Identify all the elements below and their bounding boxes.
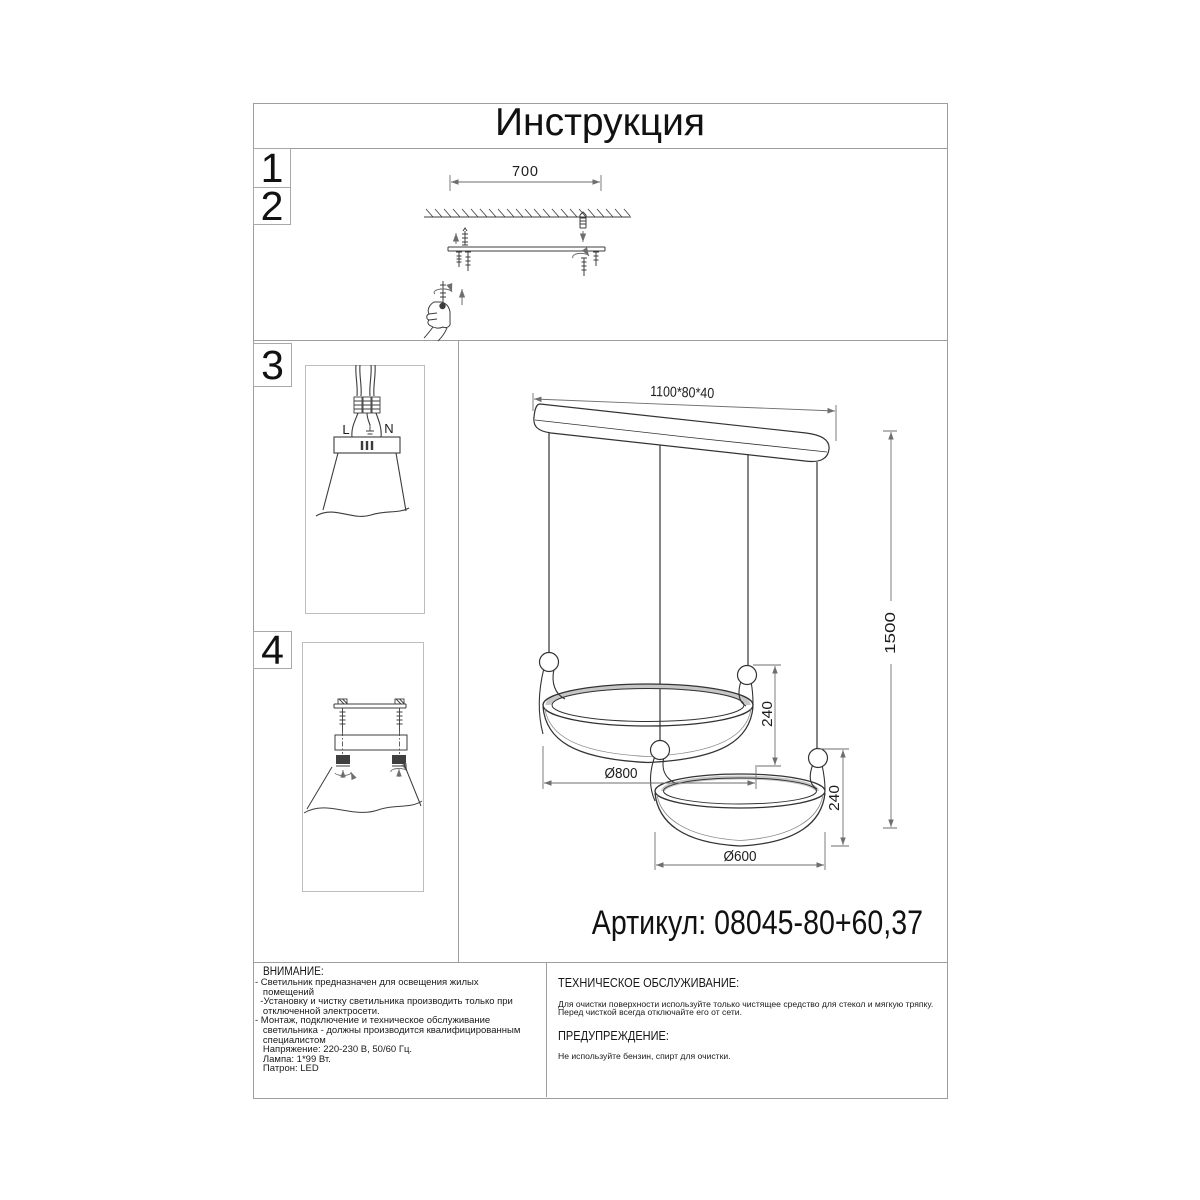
lampshade-wavy-edge [304, 801, 422, 813]
drop-dim-label: 1500 [883, 612, 899, 654]
bracket-bar [334, 704, 406, 708]
ring2-diameter-label: Ø600 [724, 849, 757, 865]
step-2-number: 2 [253, 187, 291, 225]
wiring-drawing: L N [305, 365, 423, 612]
article-number: Артикул: 08045-80+60,37 [592, 903, 894, 943]
supply-cables [356, 365, 375, 396]
maintenance-line: Перед чисткой всегда отключайте его от с… [558, 1008, 933, 1016]
cable-grippers [336, 755, 406, 766]
step-3-number: 3 [253, 343, 292, 387]
warning-text: Не используйте бензин, спирт для очистки… [558, 1052, 731, 1060]
hand-turning-connector [424, 281, 462, 341]
bracket-width-dim-label: 700 [512, 164, 538, 180]
attention-line: Патрон: LED [255, 1064, 541, 1074]
divider-notes [546, 962, 547, 1097]
wires-to-canopy [352, 413, 381, 437]
step-4-number: 4 [253, 631, 292, 669]
ceiling-hatch [426, 209, 630, 217]
label-neutral: N [384, 421, 393, 436]
ceiling-mounting-drawing: 700 [410, 150, 650, 342]
suspension-balls [540, 653, 828, 768]
divider-under-title [253, 148, 947, 149]
instruction-sheet: { "title": "Инструкция", "article": "Арт… [0, 0, 1200, 1200]
ring-600 [651, 756, 826, 846]
ceiling-bar [534, 404, 829, 462]
ground-symbol [366, 424, 374, 437]
left-screws-down [456, 252, 471, 271]
divider-above-notes [253, 962, 947, 963]
attention-text: - Светильник предназначен для освещения … [255, 978, 541, 1074]
ring-800 [539, 668, 753, 763]
step-4-label: 4 [261, 627, 284, 674]
ring1-diameter-dimension [543, 746, 756, 789]
ring1-diameter-label: Ø800 [605, 766, 638, 782]
warning-heading: ПРЕДУПРЕЖДЕНИЕ: [558, 1029, 669, 1043]
pendant-lamp-drawing: 1100*80*40 1500 240 Ø800 240 Ø600 [459, 341, 947, 962]
terminal-blocks [354, 397, 380, 413]
body-mounting-drawing [302, 642, 422, 890]
label-live: L [342, 422, 349, 437]
bar-dim-label: 1100*80*40 [650, 384, 715, 402]
left-screw-up [456, 228, 468, 245]
maintenance-text: Для очистки поверхности используйте толь… [558, 1000, 933, 1016]
lampshade-sides [323, 453, 406, 511]
step-2-label: 2 [261, 183, 284, 230]
page-title: Инструкция [253, 100, 947, 146]
canopy-slots [362, 441, 372, 450]
suspension-wires [549, 433, 817, 748]
mounting-bar [448, 247, 605, 251]
canopy [335, 735, 407, 750]
ring1-height-label: 240 [760, 701, 776, 727]
tighten-arrows [335, 768, 407, 778]
lampshade-sides [307, 764, 421, 809]
lampshade-wavy-edge [316, 508, 409, 516]
step-3-label: 3 [261, 342, 284, 389]
alignment-centerlines [343, 731, 400, 754]
ring2-height-label: 240 [827, 785, 843, 811]
maintenance-heading: ТЕХНИЧЕСКОЕ ОБСЛУЖИВАНИЕ: [558, 976, 739, 990]
right-screws-and-rotation [573, 252, 599, 276]
